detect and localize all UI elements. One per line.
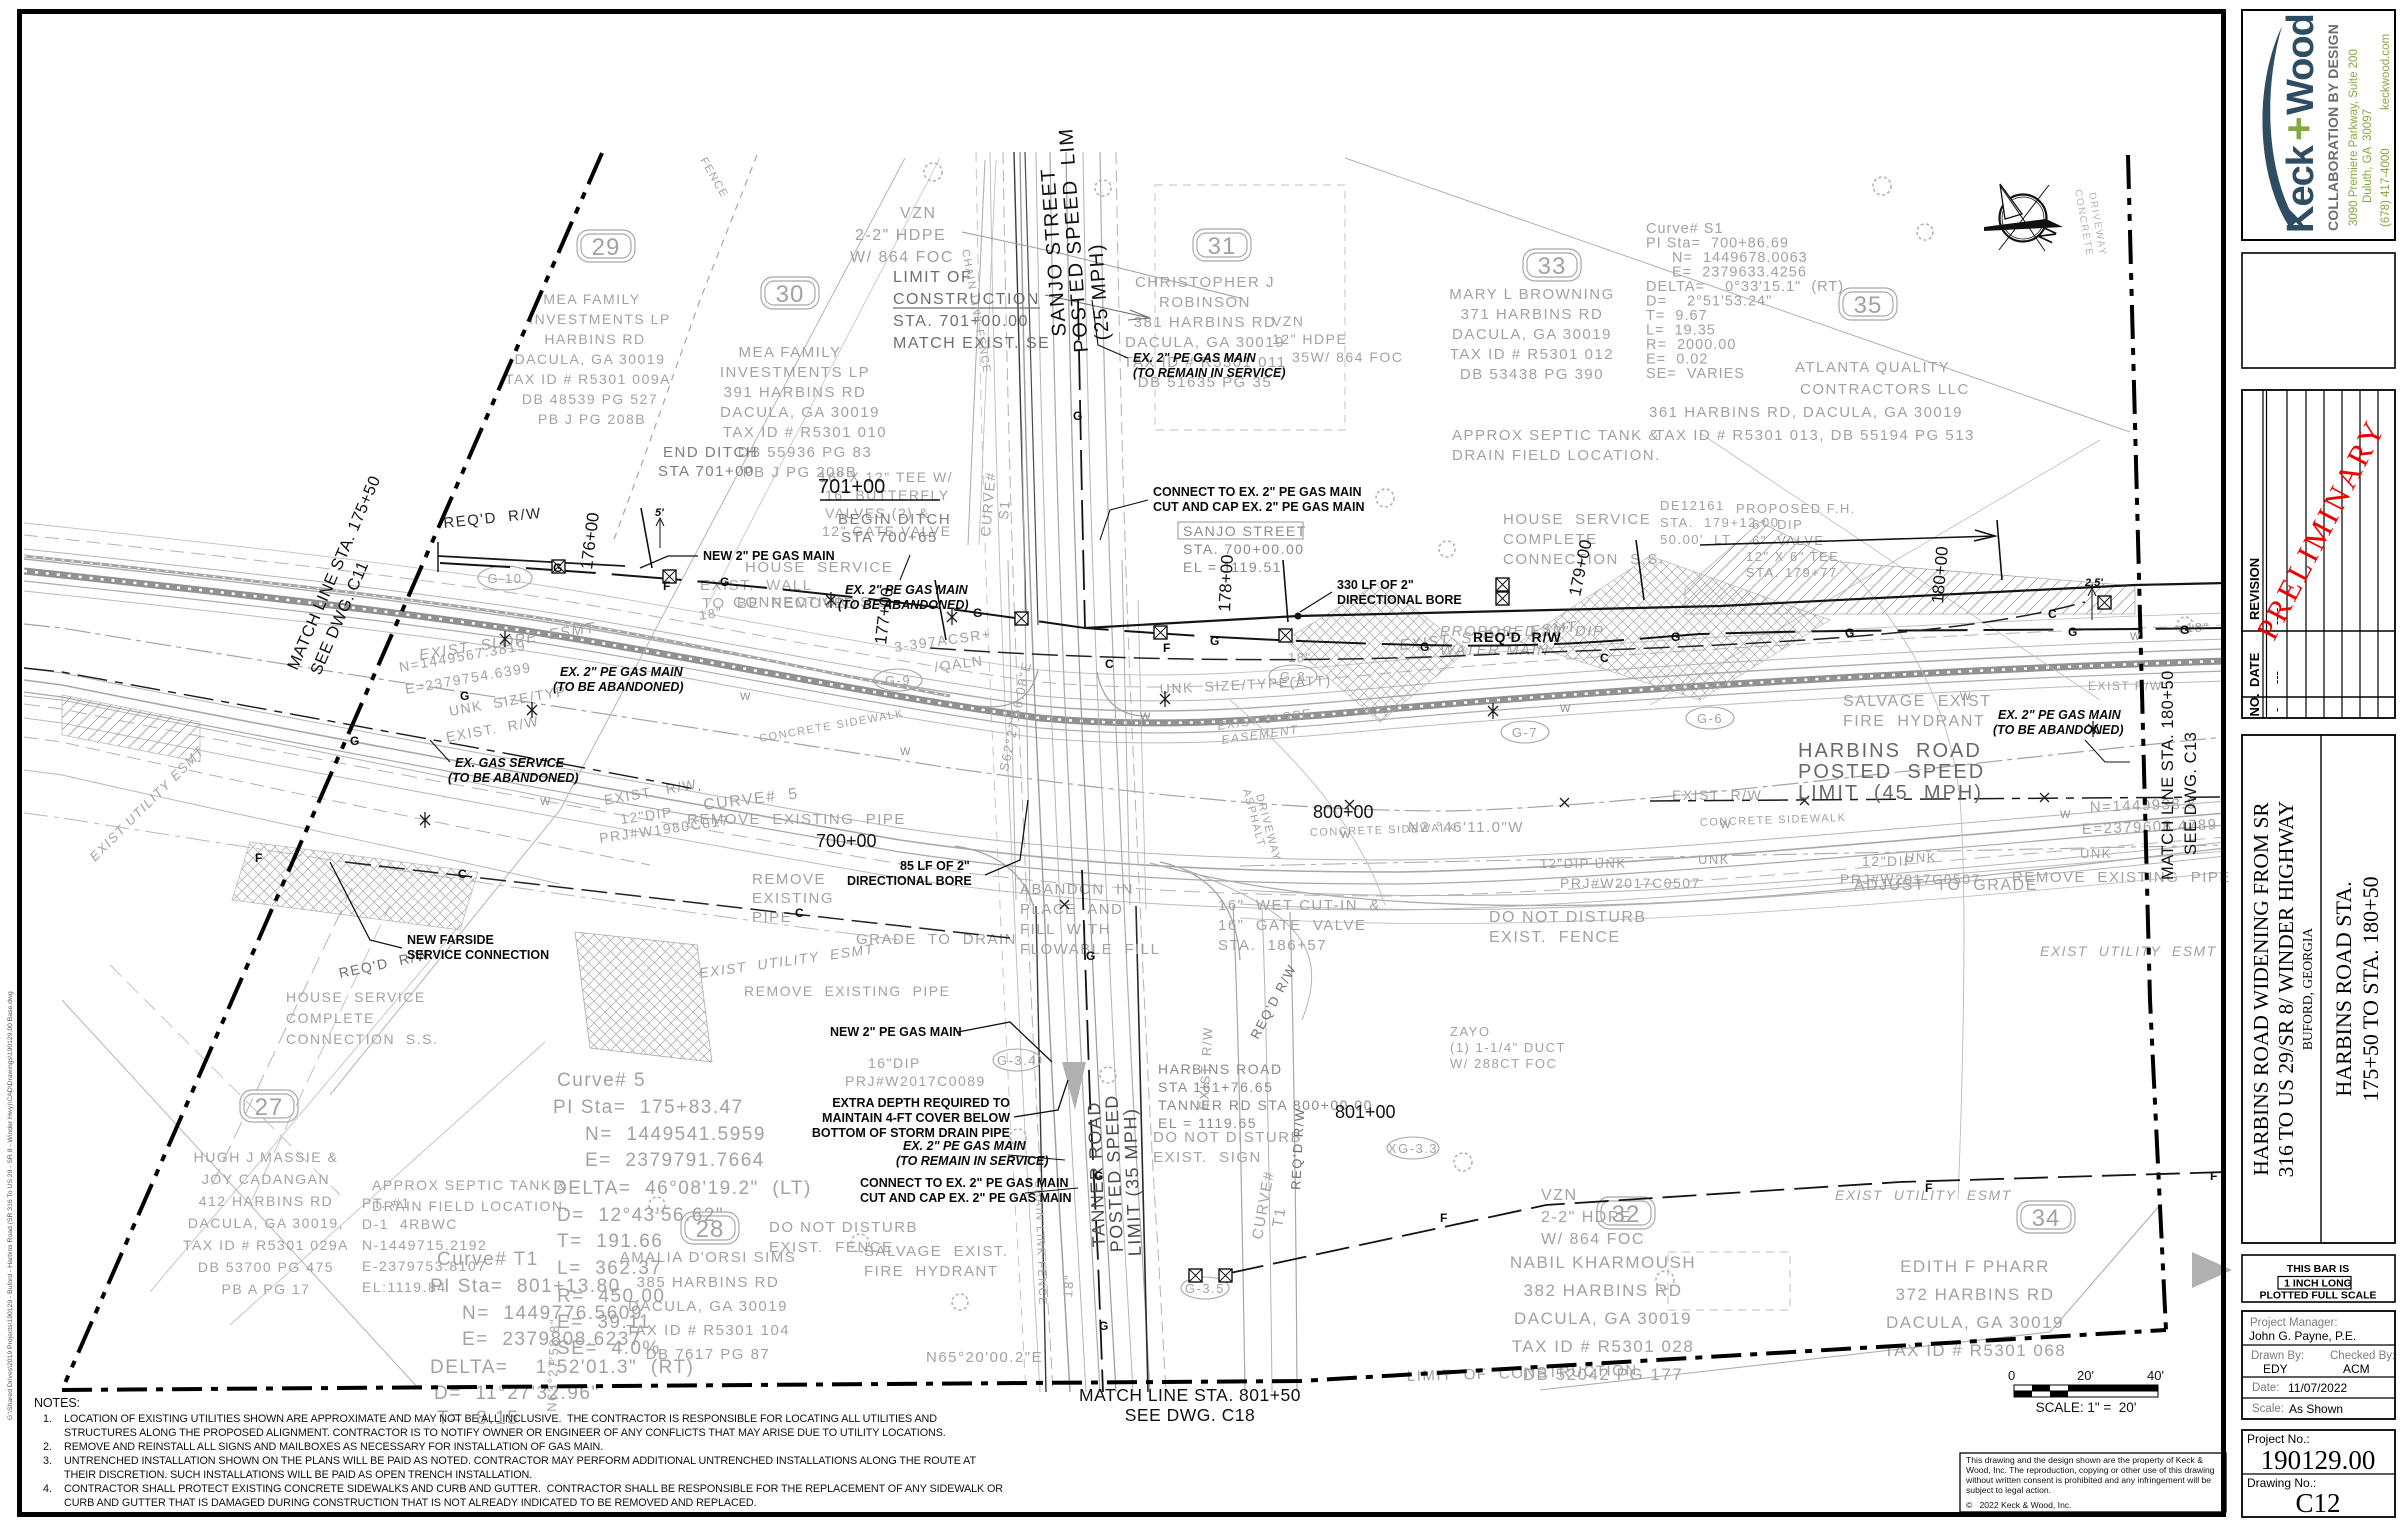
svg-text:G: G xyxy=(350,734,359,748)
svg-text:G-3.4: G-3.4 xyxy=(997,1053,1037,1068)
svg-text:THEIR DISCRETION. SUCH INSTALL: THEIR DISCRETION. SUCH INSTALLATIONS WIL… xyxy=(64,1469,532,1481)
svg-text:DACULA, GA 30019,: DACULA, GA 30019, xyxy=(188,1215,344,1231)
svg-text:TAX ID # R5301 010: TAX ID # R5301 010 xyxy=(723,424,887,441)
svg-text:Wood: Wood xyxy=(2280,14,2322,115)
svg-text:G: G xyxy=(1099,1319,1108,1333)
svg-text:2.5': 2.5' xyxy=(2084,577,2103,589)
svg-text:G-10: G-10 xyxy=(488,571,523,586)
svg-text:JOY CADANGAN: JOY CADANGAN xyxy=(202,1171,330,1187)
svg-text:6" DIP: 6" DIP xyxy=(1752,517,1803,532)
svg-text:2-2" HDPE: 2-2" HDPE xyxy=(855,227,946,244)
svg-text:29: 29 xyxy=(592,234,621,261)
svg-text:DACULA, GA 30019: DACULA, GA 30019 xyxy=(1514,1309,1692,1328)
svg-text:D-1 4RBWC: D-1 4RBWC xyxy=(362,1216,458,1232)
svg-text:HARBINS ROAD: HARBINS ROAD xyxy=(1158,1061,1283,1077)
svg-text:PRJ#W2017C0507: PRJ#W2017C0507 xyxy=(1560,875,1701,891)
svg-text:As Shown: As Shown xyxy=(2289,1402,2343,1416)
svg-text:SERVICE CONNECTION: SERVICE CONNECTION xyxy=(407,948,549,962)
svg-text:SEE DWG. C18: SEE DWG. C18 xyxy=(1125,1405,1255,1425)
svg-text:REMOVE EXISTING PIPE: REMOVE EXISTING PIPE xyxy=(2012,869,2231,886)
svg-text:REMOVE: REMOVE xyxy=(752,871,826,888)
svg-text:SANJO STREET: SANJO STREET xyxy=(1183,523,1307,539)
svg-text:HARBINS ROAD WIDENING FROM SR: HARBINS ROAD WIDENING FROM SR xyxy=(2249,802,2273,1176)
svg-text:FIRE HYDRANT: FIRE HYDRANT xyxy=(864,1263,999,1280)
svg-text:EXIST. FENCE: EXIST. FENCE xyxy=(1489,929,1621,946)
svg-text:TAX ID # R5301 013, DB 55194 P: TAX ID # R5301 013, DB 55194 PG 513 xyxy=(1655,427,1975,444)
svg-text:SEE DWG. C13: SEE DWG. C13 xyxy=(2182,732,2200,855)
svg-text:SALVAGE EXIST.: SALVAGE EXIST. xyxy=(864,1243,1009,1260)
svg-text:STA 700+65: STA 700+65 xyxy=(841,529,938,546)
svg-text:S1: S1 xyxy=(995,499,1013,520)
svg-text:NABIL KHARMOUSH: NABIL KHARMOUSH xyxy=(1510,1253,1696,1272)
svg-text:NEW 2" PE GAS MAIN: NEW 2" PE GAS MAIN xyxy=(830,1025,962,1039)
svg-text:MATCH LINE STA. 801+50: MATCH LINE STA. 801+50 xyxy=(1079,1385,1301,1405)
svg-text:PRJ#W2017C0089: PRJ#W2017C0089 xyxy=(845,1073,986,1089)
svg-text:C: C xyxy=(1105,657,1114,671)
svg-text:D= 12°43'56.62": D= 12°43'56.62" xyxy=(557,1205,724,1226)
svg-text:DB 53700 PG 475: DB 53700 PG 475 xyxy=(198,1259,334,1275)
svg-text:W/ 864 FOC: W/ 864 FOC xyxy=(850,249,954,266)
svg-text:TAX ID # R5301 028: TAX ID # R5301 028 xyxy=(1512,1337,1695,1356)
svg-text:DO NOT DISTURB: DO NOT DISTURB xyxy=(1489,909,1647,926)
svg-text:CUT AND CAP EX. 2" PE GAS MAIN: CUT AND CAP EX. 2" PE GAS MAIN xyxy=(1153,500,1365,514)
svg-text:subject to legal action.: subject to legal action. xyxy=(1966,1485,2051,1495)
svg-text:371 HARBINS RD: 371 HARBINS RD xyxy=(1461,306,1604,323)
svg-text:CONTRACTORS LLC: CONTRACTORS LLC xyxy=(1800,381,1970,398)
svg-text:T= 191.66: T= 191.66 xyxy=(557,1231,663,1252)
svg-text:G-3.5: G-3.5 xyxy=(1185,1281,1225,1296)
svg-text:LOCATION OF EXISTING UTILITIES: LOCATION OF EXISTING UTILITIES SHOWN ARE… xyxy=(64,1413,937,1425)
svg-text:C: C xyxy=(1600,651,1609,665)
svg-text:W: W xyxy=(1960,691,1971,703)
svg-text:STA. 179+77: STA. 179+77 xyxy=(1746,565,1838,580)
svg-text:DO NOT DISTURB: DO NOT DISTURB xyxy=(1153,1129,1302,1146)
svg-text:316 TO US 29/SR 8/ WINDER HIGH: 316 TO US 29/SR 8/ WINDER HIGHWAY xyxy=(2274,801,2298,1178)
svg-text:Project No.:: Project No.: xyxy=(2247,1432,2310,1446)
svg-text:NO.: NO. xyxy=(2247,693,2262,716)
svg-text:DACULA, GA 30019: DACULA, GA 30019 xyxy=(1452,326,1612,343)
svg-text:801+00: 801+00 xyxy=(1335,1102,1396,1122)
svg-text:G-7: G-7 xyxy=(1512,725,1538,740)
svg-text:31: 31 xyxy=(1208,233,1237,260)
svg-text:330 LF OF 2": 330 LF OF 2" xyxy=(1337,578,1414,592)
svg-text:(TO BE ABANDONED): (TO BE ABANDONED) xyxy=(1993,723,2124,737)
svg-text:MAINTAIN 4-FT COVER BELOW: MAINTAIN 4-FT COVER BELOW xyxy=(822,1111,1010,1125)
svg-text:APPROX SEPTIC TANK &: APPROX SEPTIC TANK & xyxy=(1452,427,1660,444)
svg-text:CHRISTOPHER J: CHRISTOPHER J xyxy=(1135,274,1275,291)
svg-text:POSTED SPEED: POSTED SPEED xyxy=(1798,761,1985,783)
svg-text:800+00: 800+00 xyxy=(1313,802,1374,822)
svg-text:16" WET CUT-IN &: 16" WET CUT-IN & xyxy=(1218,897,1381,914)
svg-text:G: G xyxy=(2068,625,2077,639)
svg-text:DB 53438 PG 390: DB 53438 PG 390 xyxy=(1460,366,1604,383)
svg-text:John G. Payne, P.E.: John G. Payne, P.E. xyxy=(2249,1329,2356,1343)
svg-text:27: 27 xyxy=(255,1094,284,1121)
svg-text:CONTRACTOR SHALL PROTECT EXIST: CONTRACTOR SHALL PROTECT EXISTING CONCRE… xyxy=(64,1483,1003,1495)
svg-text:Duluth, GA 30097: Duluth, GA 30097 xyxy=(2362,109,2374,203)
svg-text:HARBINS RD: HARBINS RD xyxy=(544,331,645,347)
svg-text:PLOTTED FULL SCALE: PLOTTED FULL SCALE xyxy=(2259,1290,2376,1302)
svg-text:without written consent is pro: without written consent is prohibited an… xyxy=(1965,1475,2211,1485)
svg-text:DO NOT DISTURB: DO NOT DISTURB xyxy=(769,1219,918,1236)
svg-text:ACM: ACM xyxy=(2343,1362,2370,1376)
svg-text:MEA FAMILY: MEA FAMILY xyxy=(543,291,640,307)
svg-text:REMOVE AND REINSTALL ALL SIGNS: REMOVE AND REINSTALL ALL SIGNS AND MAILB… xyxy=(64,1441,603,1453)
svg-text:HARBINS ROAD STA.: HARBINS ROAD STA. xyxy=(2331,881,2356,1096)
svg-text:372 HARBINS RD: 372 HARBINS RD xyxy=(1896,1285,2055,1304)
svg-text:PROPOSED F.H.: PROPOSED F.H. xyxy=(1736,501,1856,516)
svg-text:G: G xyxy=(1210,634,1219,648)
svg-text:TAX ID # R5301 009A: TAX ID # R5301 009A xyxy=(505,371,671,387)
svg-text:CONNECT TO EX. 2" PE GAS MAIN: CONNECT TO EX. 2" PE GAS MAIN xyxy=(860,1176,1069,1190)
svg-text:C: C xyxy=(2048,607,2057,621)
svg-text:0: 0 xyxy=(2008,1368,2015,1383)
svg-text:STRUCTURES ALONG THE PROPOSED: STRUCTURES ALONG THE PROPOSED ALIGNMENT.… xyxy=(64,1427,946,1439)
svg-text:W: W xyxy=(1560,703,1571,715)
svg-text:EDY: EDY xyxy=(2263,1362,2288,1376)
svg-text:N-1449715.2192: N-1449715.2192 xyxy=(362,1237,487,1253)
svg-text:EXIST R/W: EXIST R/W xyxy=(2088,679,2163,693)
svg-text:W/ 864 FOC: W/ 864 FOC xyxy=(1541,1231,1645,1248)
svg-text:EX. 2" PE GAS MAIN: EX. 2" PE GAS MAIN xyxy=(560,665,684,679)
svg-text:381 HARBINS RD: 381 HARBINS RD xyxy=(1134,314,1277,331)
svg-text:G: G xyxy=(720,575,729,589)
svg-text:11/07/2022: 11/07/2022 xyxy=(2288,1381,2347,1395)
svg-text:700+00: 700+00 xyxy=(816,831,877,851)
svg-text:412 HARBINS RD: 412 HARBINS RD xyxy=(199,1193,334,1209)
svg-text:G: G xyxy=(1671,630,1680,644)
svg-text:2.: 2. xyxy=(43,1441,52,1453)
svg-text:N= 1449541.5959: N= 1449541.5959 xyxy=(585,1124,766,1145)
svg-text:(1) 1-1/4" DUCT: (1) 1-1/4" DUCT xyxy=(1450,1040,1566,1055)
svg-text:TAX ID # R5301 068: TAX ID # R5301 068 xyxy=(1884,1341,2067,1360)
svg-text:1.: 1. xyxy=(43,1413,52,1425)
svg-text:LIMIT (45 MPH): LIMIT (45 MPH) xyxy=(1798,782,1983,804)
svg-text:T1: T1 xyxy=(1269,1206,1289,1229)
svg-text:F: F xyxy=(1925,1181,1932,1195)
svg-text:MARY L BROWNING: MARY L BROWNING xyxy=(1449,286,1615,303)
svg-text:G:\Shared Drives\2019 Projects: G:\Shared Drives\2019 Projects\190129 - … xyxy=(7,991,14,1420)
svg-text:UNK: UNK xyxy=(1698,852,1730,867)
svg-text:G: G xyxy=(973,606,982,620)
svg-text:TAX ID # R5301 012: TAX ID # R5301 012 xyxy=(1450,346,1614,363)
svg-text:6" VALVE: 6" VALVE xyxy=(1752,533,1825,548)
svg-text:EL:1119.84: EL:1119.84 xyxy=(362,1279,447,1295)
svg-text:(TO BE ABANDONED): (TO BE ABANDONED) xyxy=(553,680,684,694)
svg-text:EXTRA DEPTH REQUIRED TO: EXTRA DEPTH REQUIRED TO xyxy=(832,1096,1010,1110)
svg-text:CONSTRUCTION: CONSTRUCTION xyxy=(893,291,1040,308)
svg-text:W: W xyxy=(540,796,551,808)
svg-text:MATCH LINE STA. 180+50: MATCH LINE STA. 180+50 xyxy=(2159,670,2177,880)
svg-text:DB 48539 PG 527: DB 48539 PG 527 xyxy=(522,391,658,407)
svg-text:STA. 700+00.00: STA. 700+00.00 xyxy=(1183,541,1305,557)
svg-text:FIRE HYDRANT: FIRE HYDRANT xyxy=(1843,713,1985,730)
svg-text:34: 34 xyxy=(2032,1205,2061,1232)
svg-text:STA. 701+00.00: STA. 701+00.00 xyxy=(893,313,1029,330)
svg-text:(TO BE ABANDONED): (TO BE ABANDONED) xyxy=(448,771,579,785)
svg-text:G: G xyxy=(1845,626,1854,640)
svg-text:Keck: Keck xyxy=(2280,144,2322,233)
svg-text:DACULA, GA 30019: DACULA, GA 30019 xyxy=(720,404,880,421)
svg-text:33: 33 xyxy=(1538,253,1567,280)
svg-text:FILL WITH: FILL WITH xyxy=(1020,921,1111,938)
svg-text:STA 701+00: STA 701+00 xyxy=(658,463,755,480)
svg-text:G: G xyxy=(1073,409,1082,423)
svg-text:(TO BE ABANDONED): (TO BE ABANDONED) xyxy=(838,598,969,612)
svg-text:Wood, Inc. The reproduction, c: Wood, Inc. The reproduction, copying or … xyxy=(1966,1465,2215,1475)
svg-text:EXIST. SIGN: EXIST. SIGN xyxy=(1153,1149,1262,1166)
svg-text:ABANDON IN: ABANDON IN xyxy=(1020,881,1134,898)
svg-text:DIRECTIONAL BORE: DIRECTIONAL BORE xyxy=(1337,593,1462,607)
svg-text:This drawing and the design sh: This drawing and the design shown are th… xyxy=(1966,1455,2203,1465)
svg-text:4.: 4. xyxy=(43,1483,52,1495)
svg-text:35W/ 864 FOC: 35W/ 864 FOC xyxy=(1292,349,1403,365)
svg-text:PT. #1: PT. #1 xyxy=(362,1195,411,1211)
svg-text:+: + xyxy=(2275,116,2322,141)
svg-text:EX. 2" PE GAS MAIN: EX. 2" PE GAS MAIN xyxy=(1998,708,2122,722)
svg-text:END DITCH: END DITCH xyxy=(663,444,758,461)
svg-text:REMOVE EXISTING PIPE: REMOVE EXISTING PIPE xyxy=(744,983,950,999)
svg-text:VZN: VZN xyxy=(1272,313,1305,329)
svg-text:16" GATE VALVE: 16" GATE VALVE xyxy=(1218,917,1367,934)
svg-text:F: F xyxy=(1440,1211,1447,1225)
svg-text:HUGH J MASSIE &: HUGH J MASSIE & xyxy=(194,1149,339,1165)
svg-text:G: G xyxy=(2180,623,2189,637)
svg-text:G: G xyxy=(1420,640,1429,654)
svg-text:W: W xyxy=(2130,631,2141,643)
svg-text:(TO REMAIN IN SERVICE): (TO REMAIN IN SERVICE) xyxy=(1133,366,1286,380)
svg-text:© 2022 Keck & Wood, Inc.: © 2022 Keck & Wood, Inc. xyxy=(1966,1500,2072,1510)
svg-text:BOTTOM OF STORM DRAIN PIPE: BOTTOM OF STORM DRAIN PIPE xyxy=(812,1126,1010,1140)
svg-text:NOTES:: NOTES: xyxy=(34,1396,80,1410)
svg-text:30: 30 xyxy=(776,281,805,308)
svg-text:BEGIN DITCH: BEGIN DITCH xyxy=(838,511,951,528)
svg-text:STA 161+76.65: STA 161+76.65 xyxy=(1158,1079,1273,1095)
svg-text:E= 2379791.7664: E= 2379791.7664 xyxy=(585,1150,765,1171)
svg-text:DELTA= 1°52'01.3" (RT): DELTA= 1°52'01.3" (RT) xyxy=(430,1357,694,1378)
svg-text:keckwood.com: keckwood.com xyxy=(2380,34,2392,110)
svg-text:F: F xyxy=(2210,1169,2217,1183)
svg-text:STA. 186+57: STA. 186+57 xyxy=(1218,937,1327,954)
svg-text:EX. 2" PE GAS MAIN: EX. 2" PE GAS MAIN xyxy=(1133,351,1257,365)
svg-text:PI Sta= 801+13.80: PI Sta= 801+13.80 xyxy=(430,1276,621,1297)
svg-text:DRAIN FIELD LOCATION.: DRAIN FIELD LOCATION. xyxy=(1452,447,1661,464)
svg-text:ROBINSON: ROBINSON xyxy=(1159,294,1251,311)
svg-text:12" HDPE: 12" HDPE xyxy=(1272,331,1347,347)
svg-text:INVESTMENTS LP: INVESTMENTS LP xyxy=(529,311,671,327)
svg-text:Drawn By:: Drawn By: xyxy=(2251,1350,2304,1362)
svg-text:DACULA, GA 30019: DACULA, GA 30019 xyxy=(515,351,666,367)
svg-text:NEW FARSIDE: NEW FARSIDE xyxy=(407,933,494,947)
svg-text:Checked By:: Checked By: xyxy=(2330,1350,2395,1362)
svg-text:G: G xyxy=(1094,1169,1103,1183)
svg-text:HARBINS ROAD: HARBINS ROAD xyxy=(1798,740,1982,762)
svg-text:DACULA, GA 30019: DACULA, GA 30019 xyxy=(1125,334,1285,351)
svg-text:EDITH F PHARR: EDITH F PHARR xyxy=(1900,1257,2050,1276)
svg-text:1 INCH LONG: 1 INCH LONG xyxy=(2284,1278,2352,1290)
svg-text:Project Manager:: Project Manager: xyxy=(2250,1317,2338,1329)
svg-text:W: W xyxy=(1340,829,1351,841)
svg-text:BUFORD, GEORGIA: BUFORD, GEORGIA xyxy=(2300,928,2315,1051)
svg-text:SCALE: 1" = 20': SCALE: 1" = 20' xyxy=(2036,1400,2137,1415)
svg-text:Scale:: Scale: xyxy=(2252,1403,2284,1415)
svg-text:Curve# 5: Curve# 5 xyxy=(557,1070,646,1091)
svg-text:PI Sta= 175+83.47: PI Sta= 175+83.47 xyxy=(553,1097,744,1118)
svg-text:85 LF OF 2": 85 LF OF 2" xyxy=(900,859,970,873)
svg-text:ATLANTA QUALITY: ATLANTA QUALITY xyxy=(1795,359,1950,376)
svg-text:XG-3.3: XG-3.3 xyxy=(1388,1141,1438,1156)
svg-text:REQ'D R/W: REQ'D R/W xyxy=(1473,629,1562,645)
svg-text:3.: 3. xyxy=(43,1455,52,1467)
svg-text:701+00: 701+00 xyxy=(818,476,885,498)
svg-text:DATE: DATE xyxy=(2247,652,2262,687)
svg-text:DIRECTIONAL BORE: DIRECTIONAL BORE xyxy=(847,874,972,888)
svg-text:CONNECT TO EX. 2" PE GAS MAIN: CONNECT TO EX. 2" PE GAS MAIN xyxy=(1153,485,1362,499)
svg-text:ZAYO: ZAYO xyxy=(1450,1024,1490,1039)
svg-text:18": 18" xyxy=(1060,1273,1077,1298)
svg-text:190129.00: 190129.00 xyxy=(2261,1445,2376,1475)
svg-text:EX. 2" PE GAS MAIN: EX. 2" PE GAS MAIN xyxy=(903,1139,1027,1153)
svg-text:20': 20' xyxy=(2077,1368,2094,1383)
svg-text:N65°20'00.2"E: N65°20'00.2"E xyxy=(926,1349,1043,1366)
svg-text:G-8: G-8 xyxy=(1280,669,1306,684)
svg-text:CONNECTION S.S.: CONNECTION S.S. xyxy=(286,1031,438,1047)
svg-text:EXIST UTILITY ESMT: EXIST UTILITY ESMT xyxy=(2040,943,2217,959)
svg-text:W: W xyxy=(2060,809,2071,821)
svg-text:SE= VARIES: SE= VARIES xyxy=(1646,366,1745,382)
svg-text:DELTA= 46°08'19.2" (LT): DELTA= 46°08'19.2" (LT) xyxy=(553,1178,812,1199)
svg-text:COLLABORATION BY DESIGN: COLLABORATION BY DESIGN xyxy=(2325,24,2341,231)
svg-text:EX. 2" PE GAS MAIN: EX. 2" PE GAS MAIN xyxy=(845,583,969,597)
svg-text:12"DIP UNK: 12"DIP UNK xyxy=(1540,856,1627,871)
svg-text:---: --- xyxy=(2269,671,2284,684)
svg-text:W: W xyxy=(900,746,911,758)
svg-text:HOUSE SERVICE: HOUSE SERVICE xyxy=(286,989,426,1005)
svg-text:G-9: G-9 xyxy=(885,673,911,688)
svg-text:-: - xyxy=(2269,708,2284,712)
svg-text:Date:: Date: xyxy=(2252,1382,2280,1394)
svg-text:GRADE TO DRAIN: GRADE TO DRAIN xyxy=(856,931,1017,948)
svg-text:2-2" HDPE: 2-2" HDPE xyxy=(1541,1209,1632,1226)
svg-text:PB J PG 208B: PB J PG 208B xyxy=(538,411,646,427)
svg-text:40': 40' xyxy=(2147,1368,2164,1383)
svg-text:EXIST UTILITY ESMT: EXIST UTILITY ESMT xyxy=(1835,1187,2012,1203)
svg-text:35: 35 xyxy=(1854,292,1883,319)
svg-text:COMPLETE: COMPLETE xyxy=(286,1010,375,1026)
svg-text:5': 5' xyxy=(655,507,664,519)
svg-text:THIS BAR IS: THIS BAR IS xyxy=(2287,1263,2349,1275)
svg-text:G: G xyxy=(553,561,562,575)
svg-text:W: W xyxy=(1140,711,1151,723)
svg-text:18": 18" xyxy=(1288,650,1312,665)
svg-text:F: F xyxy=(255,851,262,865)
svg-text:EX. GAS SERVICE: EX. GAS SERVICE xyxy=(455,756,565,770)
svg-text:G: G xyxy=(1086,949,1095,963)
svg-text:391 HARBINS RD: 391 HARBINS RD xyxy=(724,384,867,401)
svg-text:W: W xyxy=(1720,819,1731,831)
svg-text:178+00: 178+00 xyxy=(1215,554,1237,612)
svg-text:C: C xyxy=(795,906,804,920)
svg-text:PLACE AND: PLACE AND xyxy=(1020,901,1123,918)
svg-text:W/ 288CT FOC: W/ 288CT FOC xyxy=(1450,1056,1557,1071)
svg-text:W: W xyxy=(740,691,751,703)
svg-text:361 HARBINS RD, DACULA, GA 300: 361 HARBINS RD, DACULA, GA 30019 xyxy=(1649,404,1963,421)
svg-text:12" X 6" TEE: 12" X 6" TEE xyxy=(1746,549,1839,564)
svg-text:NEW 2" PE GAS MAIN: NEW 2" PE GAS MAIN xyxy=(703,549,835,563)
svg-text:382 HARBINS RD: 382 HARBINS RD xyxy=(1524,1281,1683,1300)
svg-text:UNTRENCHED INSTALLATION SHOWN: UNTRENCHED INSTALLATION SHOWN ON THE PLA… xyxy=(64,1455,976,1467)
svg-text:EXISTING: EXISTING xyxy=(752,890,834,907)
svg-text:PRJ#W2017C0507: PRJ#W2017C0507 xyxy=(1840,871,1981,887)
svg-text:E-2379753.8107: E-2379753.8107 xyxy=(362,1258,487,1274)
svg-text:LIMIT OF: LIMIT OF xyxy=(893,269,972,286)
svg-text:UNK: UNK xyxy=(2080,846,2112,861)
svg-text:UNK: UNK xyxy=(1905,850,1937,865)
svg-text:F: F xyxy=(663,579,670,593)
svg-text:C12: C12 xyxy=(2295,1488,2340,1518)
svg-text:PB A PG 17: PB A PG 17 xyxy=(222,1281,311,1297)
svg-text:C: C xyxy=(458,867,467,881)
svg-text:VZN: VZN xyxy=(900,205,937,222)
svg-text:CURB AND GUTTER THAT IS DAMAGE: CURB AND GUTTER THAT IS DAMAGED DURING C… xyxy=(64,1497,757,1509)
svg-text:INVESTMENTS LP: INVESTMENTS LP xyxy=(720,364,870,381)
svg-text:DACULA, GA 30019: DACULA, GA 30019 xyxy=(1886,1313,2064,1332)
svg-text:16"DIP: 16"DIP xyxy=(868,1055,921,1071)
svg-text:DE12161: DE12161 xyxy=(1660,498,1725,513)
svg-text:CUT AND CAP EX. 2" PE GAS MAIN: CUT AND CAP EX. 2" PE GAS MAIN xyxy=(860,1191,1072,1205)
svg-text:G: G xyxy=(460,689,469,703)
svg-text:VZN: VZN xyxy=(1541,1187,1578,1204)
svg-text:(678) 417-4000: (678) 417-4000 xyxy=(2380,148,2392,227)
svg-text:175+50 TO STA. 180+50: 175+50 TO STA. 180+50 xyxy=(2358,876,2383,1101)
svg-text:G-6: G-6 xyxy=(1697,711,1723,726)
svg-text:MATCH EXIST. SE: MATCH EXIST. SE xyxy=(893,335,1050,352)
svg-text:APPROX SEPTIC TANK &: APPROX SEPTIC TANK & xyxy=(372,1177,568,1193)
svg-text:3090 Premiere Parkway, Suite 2: 3090 Premiere Parkway, Suite 200 xyxy=(2348,49,2360,226)
svg-text:MEA FAMILY: MEA FAMILY xyxy=(738,344,841,361)
svg-text:HOUSE SERVICE: HOUSE SERVICE xyxy=(1503,511,1651,528)
svg-text:TAX ID # R5301 029A: TAX ID # R5301 029A xyxy=(183,1237,349,1253)
svg-text:F: F xyxy=(1163,641,1170,655)
